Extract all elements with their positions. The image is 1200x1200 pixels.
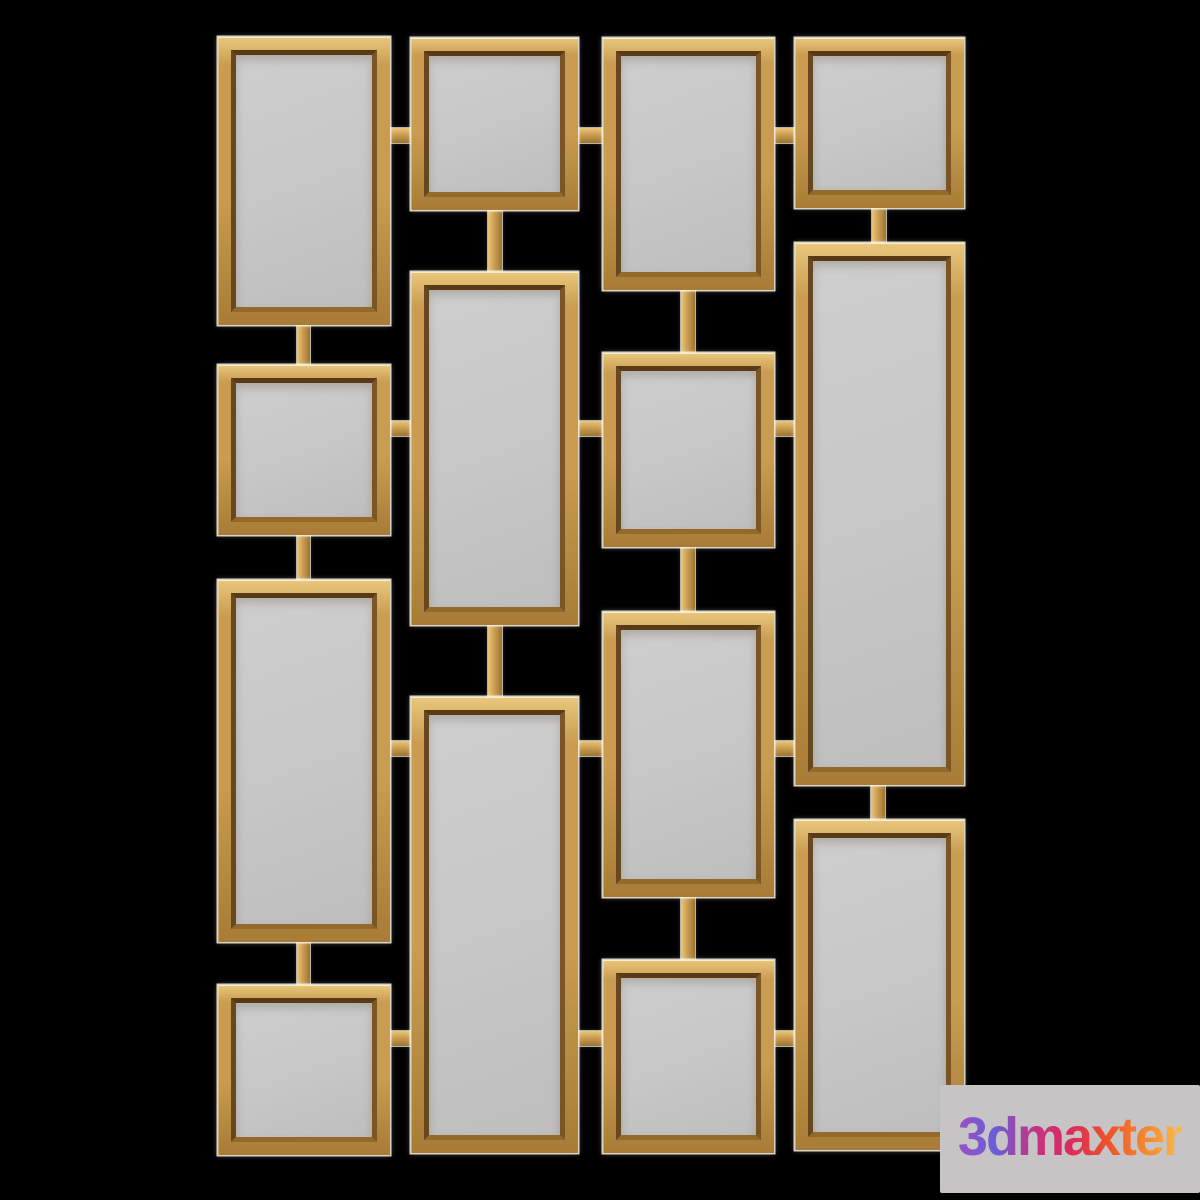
mirror-glass <box>808 256 951 772</box>
mirror-glass <box>616 625 761 884</box>
connector-bar-vertical <box>297 321 310 369</box>
mirror-frame-col2-rect-middle <box>411 272 578 625</box>
connector-bar-vertical <box>297 531 310 584</box>
mirror-frame-col3-square-2 <box>603 353 774 547</box>
mirror-glass <box>616 973 761 1140</box>
mirror-frame-col3-rect-top <box>603 38 774 290</box>
connector-bar-vertical <box>488 621 502 701</box>
mirror-grid <box>0 0 1200 1200</box>
mirror-glass <box>424 51 565 197</box>
mirror-frame-col4-rect-bottom <box>795 820 964 1150</box>
mirror-frame-col2-square-top <box>411 38 578 210</box>
mirror-glass <box>808 833 951 1137</box>
mirror-frame-col4-rect-middle <box>795 243 964 785</box>
connector-bar-vertical <box>681 543 695 616</box>
mirror-glass <box>231 378 377 522</box>
mirror-frame-col1-rect-top <box>218 37 390 325</box>
product-render-canvas: 3dmaxter <box>0 0 1200 1200</box>
mirror-frame-col1-square-bottom <box>218 985 390 1155</box>
mirror-frame-col2-rect-bottom <box>411 697 578 1153</box>
watermark-badge: 3dmaxter <box>940 1085 1200 1193</box>
mirror-glass <box>424 285 565 612</box>
mirror-glass <box>616 51 761 277</box>
mirror-frame-col1-square-2 <box>218 365 390 535</box>
mirror-glass <box>231 50 377 312</box>
connector-bar-vertical <box>297 938 310 989</box>
connector-bar-vertical <box>681 286 695 357</box>
mirror-frame-col4-square-top <box>795 38 964 208</box>
watermark-logo-text: 3dmaxter <box>958 1110 1182 1164</box>
connector-bar-vertical <box>681 893 695 964</box>
mirror-glass <box>231 998 377 1142</box>
mirror-frame-col3-square-bottom <box>603 960 774 1153</box>
mirror-glass <box>616 366 761 534</box>
mirror-frame-col1-rect-3 <box>218 580 390 942</box>
mirror-glass <box>231 593 377 929</box>
mirror-glass <box>808 51 951 195</box>
connector-bar-vertical <box>488 206 502 276</box>
connector-bar-vertical <box>871 781 885 824</box>
mirror-glass <box>424 710 565 1140</box>
mirror-frame-col3-rect-3 <box>603 612 774 897</box>
connector-bar-vertical <box>872 204 886 247</box>
